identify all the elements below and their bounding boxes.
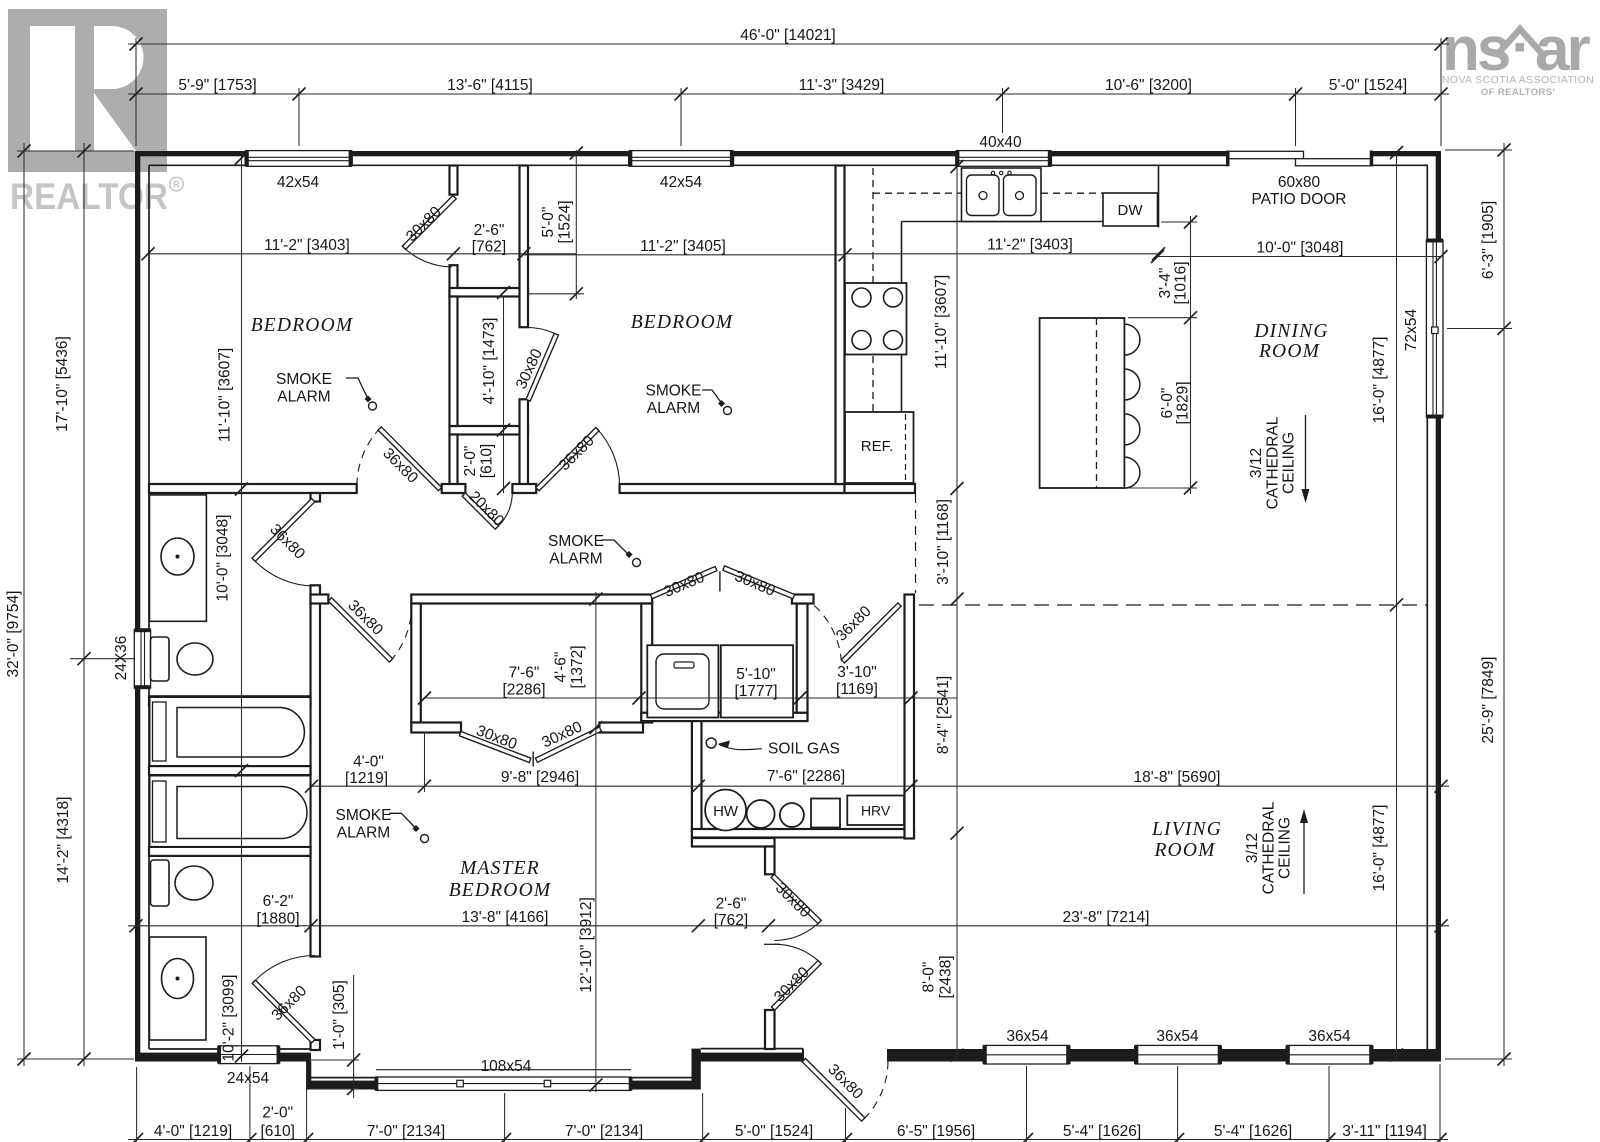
svg-text:11'-2" [3403]: 11'-2" [3403]: [987, 237, 1073, 254]
svg-text:11'-10" [3607]: 11'-10" [3607]: [217, 348, 234, 442]
svg-text:5'-0": 5'-0": [540, 207, 557, 238]
svg-text:3/12: 3/12: [1244, 833, 1261, 863]
svg-text:[762]: [762]: [472, 239, 506, 256]
svg-text:7'-0" [2134]: 7'-0" [2134]: [367, 1123, 445, 1140]
svg-text:40x40: 40x40: [979, 134, 1022, 151]
svg-text:4'-0": 4'-0": [353, 754, 384, 771]
svg-text:4'-0" [1219]: 4'-0" [1219]: [154, 1123, 232, 1140]
svg-text:CEILING: CEILING: [1281, 432, 1298, 494]
svg-text:7'-6": 7'-6": [509, 665, 540, 682]
svg-text:6'-2": 6'-2": [263, 893, 294, 910]
svg-text:60x80: 60x80: [1278, 174, 1321, 191]
svg-text:1'-0" [305]: 1'-0" [305]: [331, 980, 348, 1050]
svg-text:REF.: REF.: [861, 438, 894, 455]
svg-text:BEDROOM: BEDROOM: [631, 312, 734, 333]
svg-text:ALARM: ALARM: [647, 400, 700, 417]
svg-text:[1524]: [1524]: [557, 200, 574, 243]
svg-text:ALARM: ALARM: [277, 389, 330, 406]
svg-text:OF REALTORS': OF REALTORS': [1481, 87, 1555, 98]
svg-text:2'-0": 2'-0": [462, 446, 479, 477]
svg-text:[1829]: [1829]: [1175, 381, 1192, 424]
svg-text:CEILING: CEILING: [1277, 817, 1294, 879]
svg-text:13'-6" [4115]: 13'-6" [4115]: [447, 77, 533, 94]
svg-text:CATHEDRAL: CATHEDRAL: [1261, 801, 1278, 894]
svg-text:9'-8" [2946]: 9'-8" [2946]: [501, 769, 579, 786]
svg-text:25'-9" [7849]: 25'-9" [7849]: [1480, 657, 1497, 744]
svg-text:10'-0" [3048]: 10'-0" [3048]: [1257, 240, 1344, 257]
svg-text:[2438]: [2438]: [938, 955, 955, 998]
svg-text:36x54: 36x54: [1006, 1028, 1049, 1045]
svg-text:SMOKE: SMOKE: [548, 533, 604, 550]
svg-text:10'-0" [3048]: 10'-0" [3048]: [215, 515, 232, 602]
svg-text:24x54: 24x54: [227, 1070, 270, 1087]
svg-text:46'-0" [14021]: 46'-0" [14021]: [740, 27, 836, 44]
svg-text:2'-6": 2'-6": [716, 896, 747, 913]
svg-text:SOIL GAS: SOIL GAS: [768, 741, 840, 758]
svg-text:BEDROOM: BEDROOM: [251, 315, 354, 336]
svg-text:14'-2" [4318]: 14'-2" [4318]: [55, 797, 72, 884]
svg-text:8'-0": 8'-0": [921, 962, 938, 993]
svg-text:[762]: [762]: [714, 912, 748, 929]
svg-text:R: R: [173, 180, 180, 190]
svg-text:5'-4" [1626]: 5'-4" [1626]: [1214, 1123, 1292, 1140]
svg-text:2'-0": 2'-0": [262, 1105, 293, 1122]
svg-text:4'-10" [1473]: 4'-10" [1473]: [481, 318, 498, 405]
svg-text:4'-6": 4'-6": [553, 652, 570, 683]
svg-text:NOVA SCOTIA ASSOCIATION: NOVA SCOTIA ASSOCIATION: [1442, 74, 1594, 86]
svg-text:108x54: 108x54: [481, 1058, 532, 1075]
svg-text:18'-8" [5690]: 18'-8" [5690]: [1134, 769, 1221, 786]
svg-text:[2286]: [2286]: [502, 682, 545, 699]
svg-text:36x54: 36x54: [1156, 1028, 1199, 1045]
svg-text:MASTER: MASTER: [459, 858, 540, 879]
svg-text:11'-10" [3607]: 11'-10" [3607]: [933, 275, 950, 369]
svg-text:11'-2" [3403]: 11'-2" [3403]: [264, 237, 350, 254]
svg-text:SMOKE: SMOKE: [336, 807, 392, 824]
svg-text:24X36: 24X36: [113, 636, 130, 681]
svg-text:LIVING: LIVING: [1151, 819, 1222, 840]
svg-text:HW: HW: [713, 803, 739, 820]
svg-text:32'-0" [9754]: 32'-0" [9754]: [5, 591, 22, 678]
svg-text:11'-3" [3429]: 11'-3" [3429]: [799, 77, 885, 94]
svg-text:DINING: DINING: [1253, 321, 1328, 342]
svg-text:2'-6": 2'-6": [474, 222, 505, 239]
svg-text:17'-10" [5436]: 17'-10" [5436]: [54, 336, 71, 432]
svg-text:SMOKE: SMOKE: [276, 371, 332, 388]
svg-text:10'-6" [3200]: 10'-6" [3200]: [1105, 77, 1192, 94]
svg-text:DW: DW: [1118, 202, 1144, 219]
svg-text:ALARM: ALARM: [549, 551, 602, 568]
svg-text:3'-10": 3'-10": [837, 664, 876, 681]
svg-text:CATHEDRAL: CATHEDRAL: [1265, 416, 1282, 509]
svg-text:72x54: 72x54: [1403, 309, 1420, 352]
svg-text:REALTOR: REALTOR: [10, 176, 168, 217]
svg-text:8'-4" [2541]: 8'-4" [2541]: [935, 676, 952, 754]
svg-text:6'-3" [1905]: 6'-3" [1905]: [1480, 201, 1497, 279]
svg-text:11'-2" [3405]: 11'-2" [3405]: [640, 238, 726, 255]
svg-text:[1169]: [1169]: [836, 681, 878, 698]
svg-text:[1016]: [1016]: [1173, 261, 1190, 304]
svg-text:5'-4" [1626]: 5'-4" [1626]: [1063, 1123, 1141, 1140]
svg-text:3/12: 3/12: [1248, 448, 1265, 478]
svg-text:7'-6" [2286]: 7'-6" [2286]: [767, 768, 845, 785]
svg-text:5'-0" [1524]: 5'-0" [1524]: [1329, 77, 1407, 94]
svg-text:HRV: HRV: [861, 803, 891, 819]
svg-text:SMOKE: SMOKE: [646, 383, 702, 400]
svg-text:ROOM: ROOM: [1258, 341, 1321, 362]
svg-text:5'-10": 5'-10": [736, 666, 775, 683]
svg-text:6'-0": 6'-0": [1159, 388, 1176, 419]
svg-text:[1880]: [1880]: [256, 911, 299, 928]
svg-text:[1777]: [1777]: [734, 683, 777, 700]
svg-text:[1219]: [1219]: [345, 770, 388, 787]
svg-text:3'-4": 3'-4": [1157, 268, 1174, 299]
svg-text:5'-0" [1524]: 5'-0" [1524]: [735, 1123, 813, 1140]
svg-text:3'-10" [1168]: 3'-10" [1168]: [935, 499, 952, 585]
svg-text:16'-0" [4877]: 16'-0" [4877]: [1371, 805, 1388, 892]
svg-text:BEDROOM: BEDROOM: [449, 880, 552, 901]
svg-text:36x54: 36x54: [1308, 1028, 1351, 1045]
svg-text:[610]: [610]: [479, 444, 496, 478]
svg-text:6'-5" [1956]: 6'-5" [1956]: [897, 1123, 975, 1140]
svg-text:[1372]: [1372]: [569, 645, 586, 688]
svg-text:42x54: 42x54: [660, 174, 703, 191]
svg-text:16'-0" [4877]: 16'-0" [4877]: [1371, 337, 1388, 424]
svg-text:23'-8" [7214]: 23'-8" [7214]: [1063, 909, 1150, 926]
svg-text:42x54: 42x54: [277, 174, 320, 191]
svg-text:ROOM: ROOM: [1153, 840, 1216, 861]
svg-text:PATIO DOOR: PATIO DOOR: [1251, 191, 1346, 208]
svg-text:13'-8" [4166]: 13'-8" [4166]: [462, 909, 549, 926]
svg-text:7'-0" [2134]: 7'-0" [2134]: [565, 1123, 643, 1140]
svg-text:3'-11" [1194]: 3'-11" [1194]: [1342, 1123, 1427, 1140]
svg-text:12'-10" [3912]: 12'-10" [3912]: [578, 897, 595, 993]
svg-text:[610]: [610]: [260, 1123, 294, 1140]
svg-text:ALARM: ALARM: [337, 825, 390, 842]
svg-text:5'-9" [1753]: 5'-9" [1753]: [178, 77, 256, 94]
svg-text:10'-2" [3099]: 10'-2" [3099]: [221, 975, 238, 1062]
